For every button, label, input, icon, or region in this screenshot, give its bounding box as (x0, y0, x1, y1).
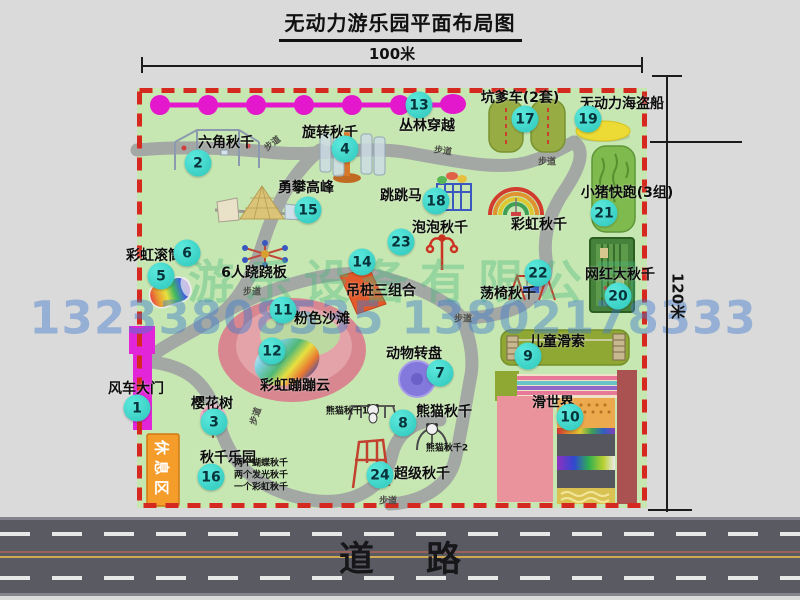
attraction-sublabel: 一个彩虹秋千 (234, 480, 288, 493)
attraction-badge: 20 (605, 283, 632, 310)
attraction-badge: 17 (512, 106, 539, 133)
attraction-label: 泡泡秋千 (412, 217, 468, 237)
attraction-badge: 11 (270, 297, 297, 324)
attraction-label: 粉色沙滩 (294, 308, 350, 328)
attraction-badge: 21 (591, 200, 618, 227)
attraction-badge: 24 (367, 462, 394, 489)
rest-area-label: 休息区 (152, 440, 173, 500)
attraction-badge: 10 (557, 404, 584, 431)
path-label: 步道 (538, 155, 556, 168)
attraction-label: 勇攀高峰 (278, 177, 334, 197)
attraction-badge: 13 (406, 92, 433, 119)
attraction-badge: 15 (295, 197, 322, 224)
path-label: 步道 (433, 142, 453, 157)
attraction-badge: 3 (201, 409, 228, 436)
path-label: 步道 (261, 132, 283, 153)
attraction-label: 六角秋千 (198, 132, 254, 152)
attraction-badge: 9 (515, 343, 542, 370)
dimension-tick-mid (650, 141, 742, 143)
road-label: 道路 (339, 531, 513, 582)
attraction-badge: 4 (332, 136, 359, 163)
attraction-label: 超级秋千 (394, 463, 450, 483)
dimension-line-horizontal (142, 65, 642, 67)
screenshot-stage: 无动力游乐园平面布局图 100米 120米 (0, 0, 800, 600)
dimension-tick-top (652, 75, 682, 77)
path-label: 步道 (246, 405, 264, 426)
attraction-label: 小猪快跑(3组) (581, 182, 674, 202)
path-label: 步道 (243, 285, 261, 298)
park-map: 休息区 风车大门1六角秋千2樱花树3旋转秋千4彩虹滚筒56人跷跷板6动物转盘7熊… (137, 88, 647, 508)
attraction-badge: 12 (259, 338, 286, 365)
attraction-label: 彩虹秋千 (511, 214, 567, 234)
road-label-wrap: 道路 (0, 520, 800, 593)
attraction-label: 荡椅秋千 (480, 283, 536, 303)
attraction-badge: 23 (388, 229, 415, 256)
attraction-label: 丛林穿越 (399, 115, 455, 135)
road: 道路 (0, 517, 800, 596)
attraction-label: 吊桩三组合 (346, 280, 416, 300)
attraction-label: 跳跳马 (380, 185, 422, 205)
attraction-label: 网红大秋千 (585, 264, 655, 284)
page-title: 无动力游乐园平面布局图 (279, 7, 522, 42)
dimension-width-label: 100米 (369, 43, 415, 64)
attraction-badge: 5 (148, 263, 175, 290)
attraction-badge: 22 (525, 260, 552, 287)
dimension-tick-left (141, 57, 143, 73)
dimension-height-label: 120米 (668, 273, 689, 319)
dimension-tick-right (641, 57, 643, 73)
attraction-sublabel: 熊猫秋千1 (326, 404, 368, 417)
attraction-sublabel: 熊猫秋千2 (426, 441, 468, 454)
path-label: 步道 (379, 494, 397, 507)
attraction-badge: 6 (174, 240, 201, 267)
attraction-badge: 8 (390, 410, 417, 437)
attraction-label: 6人跷跷板 (221, 262, 287, 282)
attraction-label: 彩虹蹦蹦云 (260, 375, 330, 395)
dimension-tick-bottom (648, 509, 692, 511)
attraction-badge: 7 (427, 360, 454, 387)
title-bar: 无动力游乐园平面布局图 (0, 7, 800, 42)
attraction-badge: 16 (198, 464, 225, 491)
attraction-badge: 18 (423, 188, 450, 215)
path-label: 步道 (454, 312, 472, 325)
attraction-label: 熊猫秋千 (416, 401, 472, 421)
attraction-badge: 14 (349, 249, 376, 276)
attraction-badge: 19 (575, 106, 602, 133)
attraction-label: 坑爹车(2套) (481, 87, 560, 107)
attraction-badge: 2 (185, 150, 212, 177)
attraction-badge: 1 (124, 395, 151, 422)
